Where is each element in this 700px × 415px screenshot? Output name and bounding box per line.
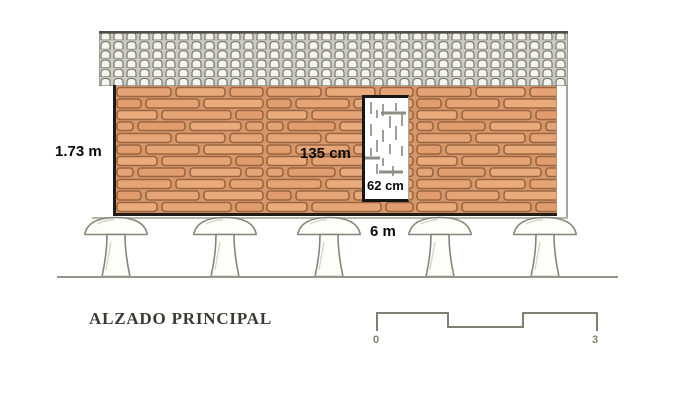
support-pillar-3 [296, 216, 362, 278]
wall-height-label: 1.73 m [55, 144, 102, 159]
opening-height-label: 135 cm [300, 146, 351, 161]
opening-width-label: 62 cm [366, 179, 405, 193]
drawing-title: ALZADO PRINCIPAL [89, 309, 272, 329]
wall-left-edge-line [113, 85, 116, 215]
wall-right-edge-line [556, 86, 557, 214]
support-pillar-4 [407, 216, 473, 278]
scale-start-label: 0 [373, 334, 379, 346]
right-corner-line [566, 86, 568, 217]
tiled-roof [99, 31, 568, 86]
scale-end-label: 3 [592, 334, 598, 346]
support-pillar-1 [83, 216, 149, 278]
ground-line [57, 276, 618, 278]
scale-bar: 0 3 [368, 303, 606, 347]
support-pillar-2 [192, 216, 258, 278]
building-width-label: 6 m [370, 224, 396, 239]
elevation-drawing: 62 cm 1.73 m 135 cm 6 m ALZADO PRINCIPAL [0, 0, 700, 415]
support-pillar-5 [512, 216, 578, 278]
door-opening: 62 cm [362, 95, 409, 202]
